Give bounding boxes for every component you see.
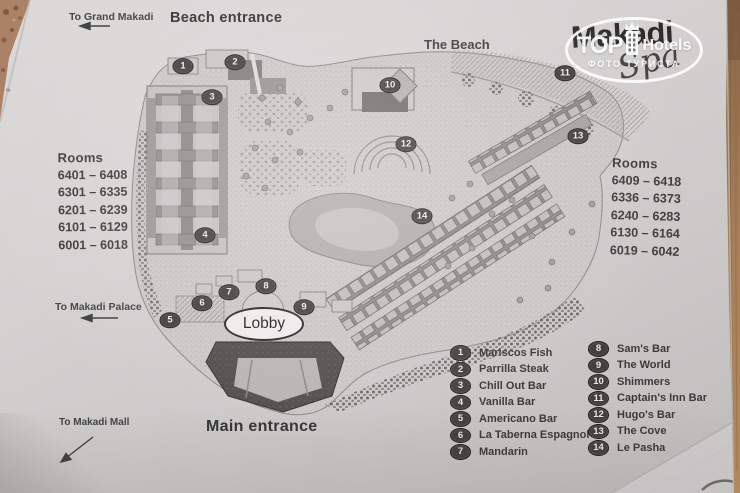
legend-number-badge: 9	[588, 358, 609, 374]
legend-item: 14 Le Pasha	[588, 441, 707, 455]
legend-label: The Cove	[617, 425, 667, 437]
legend-column-left: 1 Mariscos Fish 2 Parrilla Steak 3 Chill…	[450, 346, 589, 462]
tophotels-watermark: TOP Hotels ФОТО ТУРИСТА	[565, 17, 703, 83]
rooms-list-east: Rooms 6409 – 64186336 – 63736240 – 62836…	[610, 154, 682, 261]
room-range: 6130 – 6164	[610, 224, 680, 243]
legend-number-badge: 5	[450, 411, 471, 427]
beach-entrance-label: Beach entrance	[170, 10, 282, 26]
legend-number-badge: 1	[450, 345, 471, 361]
main-entrance-label: Main entrance	[206, 418, 318, 436]
legend-label: Captain's Inn Bar	[617, 392, 707, 404]
makadi-palace-arrow-icon	[82, 315, 118, 322]
legend-item: 3 Chill Out Bar	[450, 379, 589, 393]
room-range: 6240 – 6283	[611, 207, 681, 226]
legend-label: Mandarin	[479, 446, 528, 458]
room-range: 6201 – 6239	[58, 201, 128, 219]
legend-label: Americano Bar	[479, 413, 557, 425]
rooms-title: Rooms	[58, 149, 128, 167]
legend-label: Shimmers	[617, 376, 670, 388]
legend-number-badge: 4	[450, 395, 471, 411]
legend-number-badge: 14	[588, 440, 609, 456]
to-makadi-palace-label: To Makadi Palace	[55, 301, 142, 313]
room-range: 6301 – 6335	[58, 184, 128, 202]
room-range: 6401 – 6408	[58, 166, 128, 184]
room-range: 6336 – 6373	[611, 189, 681, 208]
legend-label: Parrilla Steak	[479, 363, 549, 375]
legend-number-badge: 13	[588, 424, 609, 440]
legend-item: 12 Hugo's Bar	[588, 408, 707, 422]
legend-item: 11 Captain's Inn Bar	[588, 392, 707, 406]
makadi-mall-arrow-icon	[61, 437, 93, 462]
grand-makadi-arrow-icon	[80, 23, 110, 30]
legend-label: La Taberna Espagnol	[479, 429, 589, 441]
legend-number-badge: 3	[450, 378, 471, 394]
legend-item: 2 Parrilla Steak	[450, 363, 589, 377]
legend-label: The World	[617, 359, 671, 371]
legend-item: 10 Shimmers	[588, 375, 707, 389]
legend-number-badge: 2	[450, 362, 471, 378]
legend-number-badge: 8	[588, 341, 609, 357]
legend-item: 6 La Taberna Espagnol	[450, 429, 589, 443]
legend-item: 5 Americano Bar	[450, 412, 589, 426]
legend-label: Hugo's Bar	[617, 409, 675, 421]
lobby-label: Lobby	[224, 307, 304, 341]
legend-number-badge: 10	[588, 374, 609, 390]
rooms-list-west: Rooms 6401 – 64086301 – 63356201 – 62396…	[58, 149, 128, 255]
watermark-ellipse	[565, 17, 703, 83]
legend-item: 9 The World	[588, 359, 707, 373]
legend-item: 4 Vanilla Bar	[450, 396, 589, 410]
legend-column-right: 8 Sam's Bar 9 The World 10 Shimmers 11 C…	[588, 342, 707, 458]
legend-number-badge: 11	[588, 391, 609, 407]
north-east-complex	[352, 68, 417, 112]
legend-number-badge: 6	[450, 428, 471, 444]
rooms-title: Rooms	[612, 154, 682, 173]
room-range: 6019 – 6042	[610, 242, 680, 261]
legend-label: Le Pasha	[617, 442, 665, 454]
legend-label: Sam's Bar	[617, 343, 670, 355]
legend-label: Chill Out Bar	[479, 380, 546, 392]
to-makadi-mall-label: To Makadi Mall	[59, 417, 129, 428]
legend-label: Vanilla Bar	[479, 396, 535, 408]
legend-item: 7 Mandarin	[450, 445, 589, 459]
legend-number-badge: 12	[588, 407, 609, 423]
legend-item: 8 Sam's Bar	[588, 342, 707, 356]
legend-number-badge: 7	[450, 444, 471, 460]
west-building-complex	[147, 86, 228, 254]
to-grand-makadi-label: To Grand Makadi	[69, 11, 153, 23]
the-beach-label: The Beach	[424, 37, 490, 52]
resort-map-photo: To Grand Makadi Beach entrance The Beach…	[0, 0, 740, 493]
legend-item: 1 Mariscos Fish	[450, 346, 589, 360]
room-range: 6101 – 6129	[58, 219, 128, 237]
legend-label: Mariscos Fish	[479, 347, 552, 359]
legend-item: 13 The Cove	[588, 425, 707, 439]
room-range: 6001 – 6018	[58, 237, 128, 255]
room-range: 6409 – 6418	[611, 172, 681, 191]
